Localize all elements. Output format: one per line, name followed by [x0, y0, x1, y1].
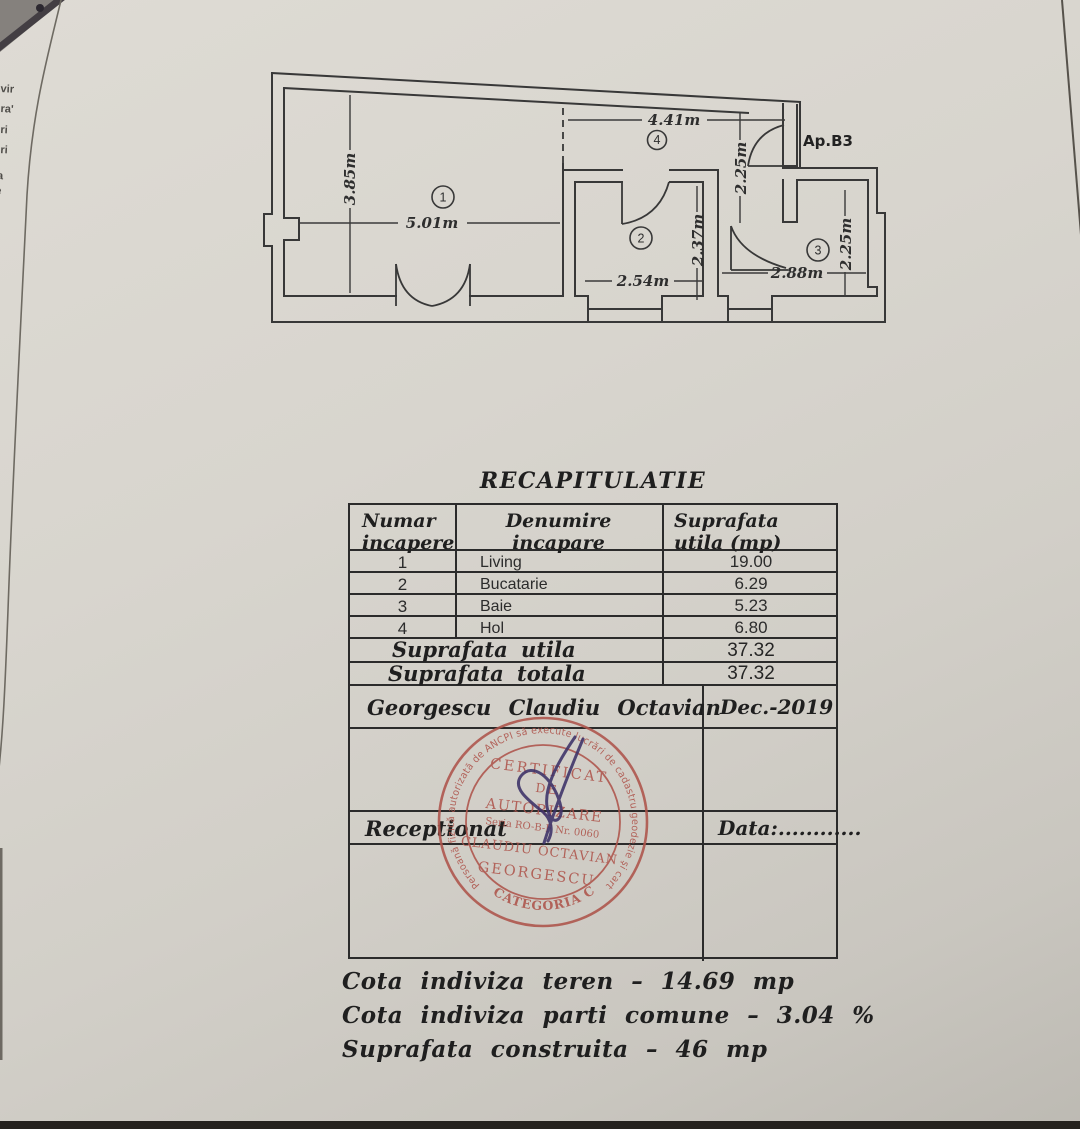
row-num: 3: [350, 597, 455, 617]
footer-summary: Cota indiviza teren – 14.69 mp Cota indi…: [342, 968, 875, 1070]
page-edge-right: [1062, 0, 1080, 235]
row-name: Hol: [480, 620, 504, 638]
row-num: 1: [350, 553, 455, 573]
fragment: ri: [0, 124, 8, 136]
total-label: Suprafata utila: [392, 638, 576, 662]
underpage-text-fragments: vir ra' ri ri a e -: [0, 83, 15, 214]
dim-kitchen-width: 2.54m: [616, 272, 669, 290]
entrance-door: [748, 125, 787, 166]
col1-header: Numar incapere: [362, 511, 454, 555]
fragment: vir: [0, 83, 15, 96]
room-number-bath: 3: [815, 244, 822, 258]
stamp-outer-circle: [439, 718, 647, 926]
fragment: ra': [0, 103, 14, 116]
dim-kitchen-height: 2.37m: [689, 214, 707, 267]
room-number-kitchen: 2: [638, 232, 645, 246]
fragment: e: [0, 185, 2, 197]
room-number-hol: 4: [654, 133, 661, 147]
apartment-label: Ap.B3: [803, 132, 853, 150]
table-line: [702, 684, 704, 961]
row-name: Living: [480, 554, 522, 572]
dim-living-width: 5.01m: [406, 214, 458, 232]
footer-line: Cota indiviza parti comune – 3.04 %: [342, 1002, 875, 1029]
row-area: 19.00: [662, 552, 840, 572]
photo-edge-bottom: [0, 1121, 1080, 1129]
data-label: Data:............: [718, 817, 861, 840]
balcony-door-arcs: [396, 264, 470, 306]
floor-plan: 3.85m 5.01m 4.41m 2.25m 2.37m 2.54m 2.88…: [250, 55, 900, 345]
dim-bath-height: 2.25m: [837, 218, 855, 271]
row-name: Baie: [480, 598, 512, 616]
fragment: ri: [0, 144, 8, 156]
dimension-labels: 3.85m 5.01m 4.41m 2.25m 2.37m 2.54m 2.88…: [341, 111, 855, 290]
dim-living-height: 3.85m: [341, 153, 359, 205]
total-value: 37.32: [662, 663, 840, 685]
stamp-line6: GEORGESCU: [477, 859, 596, 889]
footer-line: Suprafata construita – 46 mp: [342, 1036, 875, 1063]
dim-hol-width: 4.41m: [648, 111, 700, 129]
dim-bath-width: 2.88m: [770, 264, 823, 282]
row-area: 6.80: [662, 618, 840, 638]
row-num: 4: [350, 619, 455, 639]
dim-hol-height: 2.25m: [732, 142, 750, 195]
row-num: 2: [350, 575, 455, 595]
total-label: Suprafata totala: [388, 662, 586, 686]
date-value: Dec.-2019: [720, 696, 833, 719]
col2-header: Denumire incapare: [455, 511, 662, 555]
total-value: 37.32: [662, 640, 840, 662]
footer-line: Cota indiviza teren – 14.69 mp: [342, 968, 875, 995]
row-name: Bucatarie: [480, 576, 548, 594]
room-number-markers: 1 2 3 4: [432, 131, 829, 262]
certification-stamp: Persoană fizică autorizată de ANCPI să e…: [425, 705, 665, 945]
room-number-living: 1: [440, 191, 447, 205]
row-area: 6.29: [662, 574, 840, 594]
fragment: a: [0, 170, 4, 182]
col3-header: Suprafata utila (mp): [674, 511, 781, 555]
kitchen-door: [622, 182, 669, 224]
pen-clip: [36, 4, 44, 12]
recap-title: RECAPITULATIE: [348, 468, 838, 494]
row-area: 5.23: [662, 596, 840, 616]
balcony-door-leaves: [396, 264, 470, 306]
